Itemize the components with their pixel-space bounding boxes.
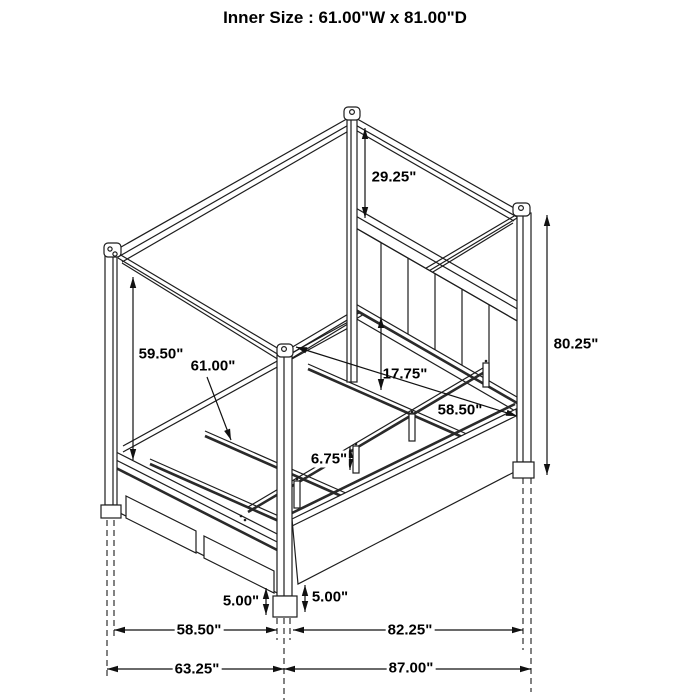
footboard-drawers [116, 452, 287, 598]
dim-support-leg: 6.75" [309, 451, 349, 468]
dim-footboard-width: 58.50" [175, 622, 224, 639]
dim-side-rail-length: 58.50" [438, 402, 483, 419]
left-post-foot [101, 505, 121, 518]
dim-rail-base: 5.00" [312, 589, 348, 606]
dim-footboard-base: 5.00" [223, 593, 259, 610]
front-post-foot [273, 596, 297, 617]
inner-size-title: Inner Size : 61.00"W x 81.00"D [223, 8, 467, 28]
dim-headboard-panel: 17.75" [383, 366, 428, 383]
headboard [354, 207, 519, 412]
dim-slat-width: 61.00" [191, 358, 236, 375]
dim-side-span: 82.25" [386, 622, 435, 639]
bed-dimension-diagram: Inner Size : 61.00"W x 81.00"D 29.25" 80… [0, 0, 700, 700]
side-rail [290, 404, 522, 584]
dim-canopy-to-headboard: 29.25" [372, 169, 417, 186]
slat-leader-arrow [207, 377, 231, 440]
dim-overall-height: 80.25" [554, 336, 599, 353]
right-post-foot [513, 462, 534, 478]
dim-overall-width: 63.25" [173, 661, 222, 678]
dim-canopy-clearance: 59.50" [139, 346, 184, 363]
dim-overall-depth: 87.00" [387, 660, 436, 677]
